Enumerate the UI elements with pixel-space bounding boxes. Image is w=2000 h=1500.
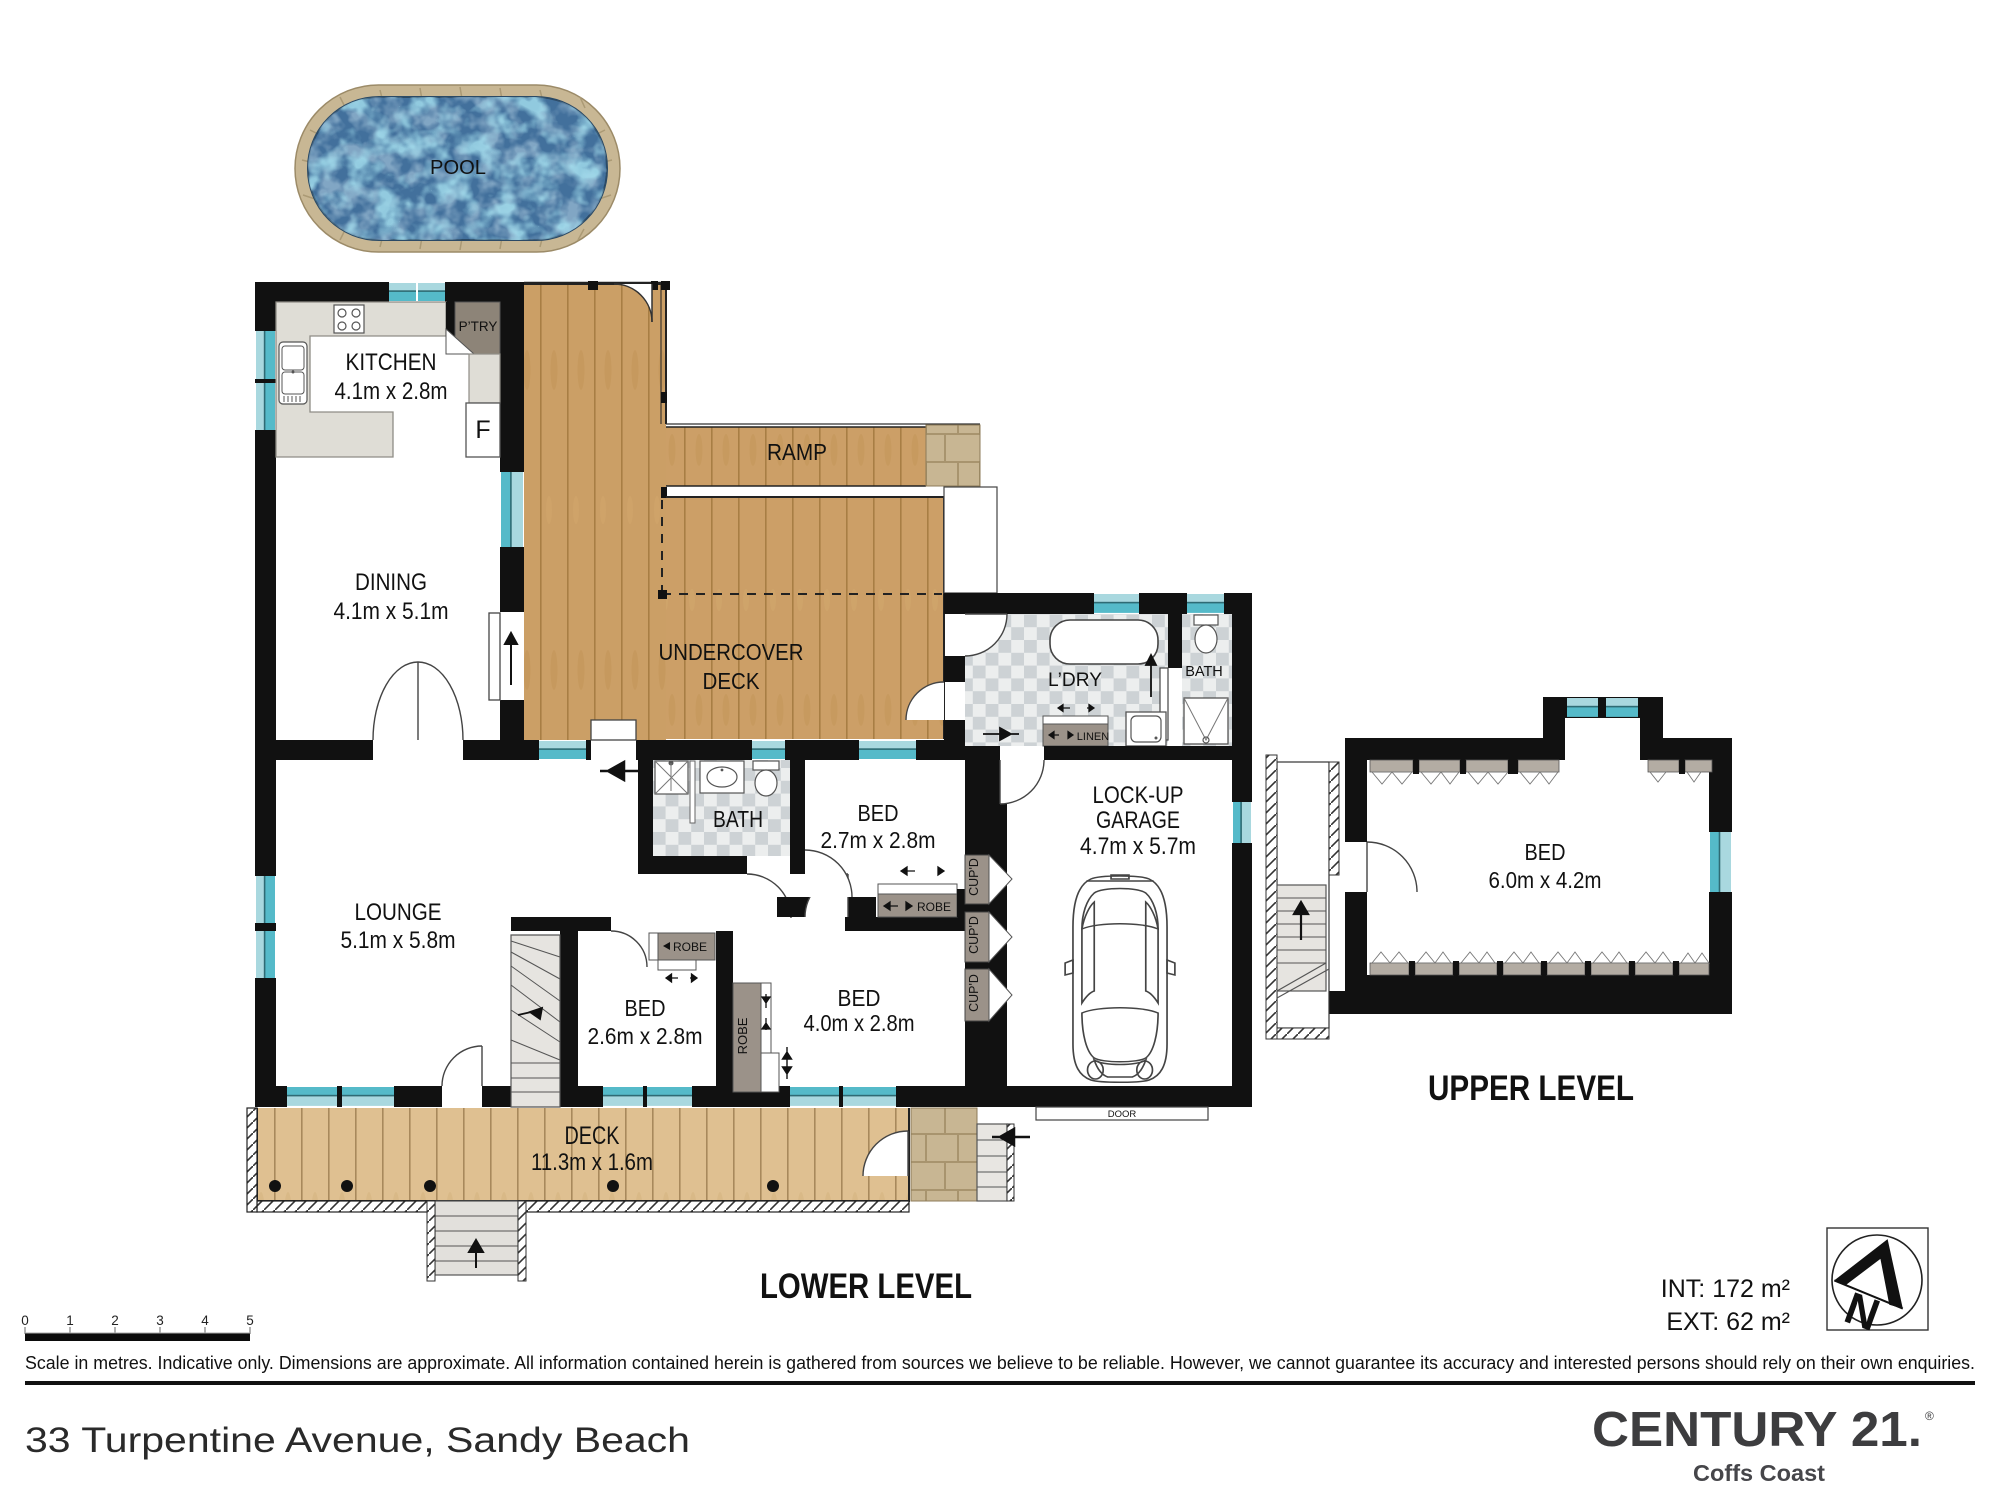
svg-text:UPPER LEVEL: UPPER LEVEL	[1428, 1069, 1634, 1108]
svg-text:BED: BED	[1525, 839, 1566, 865]
svg-text:Scale in metres. Indicative on: Scale in metres. Indicative only. Dimens…	[25, 1353, 1975, 1373]
svg-text:EXT: 62 m²: EXT: 62 m²	[1666, 1308, 1790, 1336]
svg-text:RAMP: RAMP	[767, 439, 827, 465]
svg-text:4.7m x 5.7m: 4.7m x 5.7m	[1080, 833, 1196, 860]
svg-text:F: F	[475, 416, 490, 444]
svg-text:BED: BED	[625, 995, 666, 1021]
svg-text:DOOR: DOOR	[1108, 1109, 1137, 1120]
svg-text:P’TRY: P’TRY	[459, 319, 498, 334]
svg-text:DECK: DECK	[703, 668, 761, 694]
svg-text:4.1m x 2.8m: 4.1m x 2.8m	[335, 378, 448, 405]
svg-text:INT: 172 m²: INT: 172 m²	[1661, 1275, 1790, 1303]
svg-text:LOWER LEVEL: LOWER LEVEL	[760, 1267, 972, 1306]
svg-text:®: ®	[1925, 1409, 1934, 1423]
svg-text:4.1m x 5.1m: 4.1m x 5.1m	[334, 598, 449, 625]
svg-text:CUP'D: CUP'D	[967, 916, 981, 954]
svg-text:GARAGE: GARAGE	[1096, 807, 1180, 834]
svg-text:2.7m x 2.8m: 2.7m x 2.8m	[821, 827, 936, 853]
svg-text:BATH: BATH	[1185, 664, 1223, 680]
svg-text:2.6m x 2.8m: 2.6m x 2.8m	[588, 1023, 703, 1049]
svg-text:LOUNGE: LOUNGE	[355, 899, 442, 926]
svg-text:2: 2	[111, 1313, 119, 1328]
svg-text:CUP'D: CUP'D	[967, 974, 981, 1012]
svg-text:ROBE: ROBE	[735, 1017, 750, 1054]
svg-text:ROBE: ROBE	[917, 900, 951, 914]
svg-text:0: 0	[21, 1313, 29, 1328]
svg-text:DECK: DECK	[565, 1122, 620, 1150]
svg-text:1: 1	[66, 1313, 74, 1328]
svg-text:3: 3	[156, 1313, 164, 1328]
svg-text:BED: BED	[858, 800, 899, 826]
svg-text:BED: BED	[838, 985, 881, 1011]
svg-text:CUP'D: CUP'D	[967, 858, 981, 896]
svg-text:DINING: DINING	[355, 569, 427, 596]
svg-text:CENTURY 21.: CENTURY 21.	[1592, 1403, 1922, 1457]
svg-text:5.1m x 5.8m: 5.1m x 5.8m	[341, 927, 456, 954]
svg-text:L’DRY: L’DRY	[1048, 670, 1102, 691]
svg-text:33 Turpentine Avenue, Sandy Be: 33 Turpentine Avenue, Sandy Beach	[25, 1421, 690, 1460]
svg-text:LOCK-UP: LOCK-UP	[1093, 782, 1184, 809]
svg-text:KITCHEN: KITCHEN	[346, 349, 437, 376]
svg-text:4.0m x 2.8m: 4.0m x 2.8m	[804, 1010, 915, 1036]
svg-text:4: 4	[201, 1313, 209, 1328]
svg-text:UNDERCOVER: UNDERCOVER	[659, 639, 804, 665]
svg-text:5: 5	[246, 1313, 254, 1328]
svg-text:Coffs Coast: Coffs Coast	[1693, 1460, 1825, 1486]
svg-text:11.3m x 1.6m: 11.3m x 1.6m	[531, 1149, 653, 1176]
svg-text:BATH: BATH	[713, 806, 763, 832]
svg-text:POOL: POOL	[430, 157, 486, 179]
svg-text:ROBE: ROBE	[673, 940, 707, 954]
svg-text:LINEN: LINEN	[1077, 731, 1109, 743]
svg-text:6.0m x 4.2m: 6.0m x 4.2m	[1489, 867, 1602, 893]
